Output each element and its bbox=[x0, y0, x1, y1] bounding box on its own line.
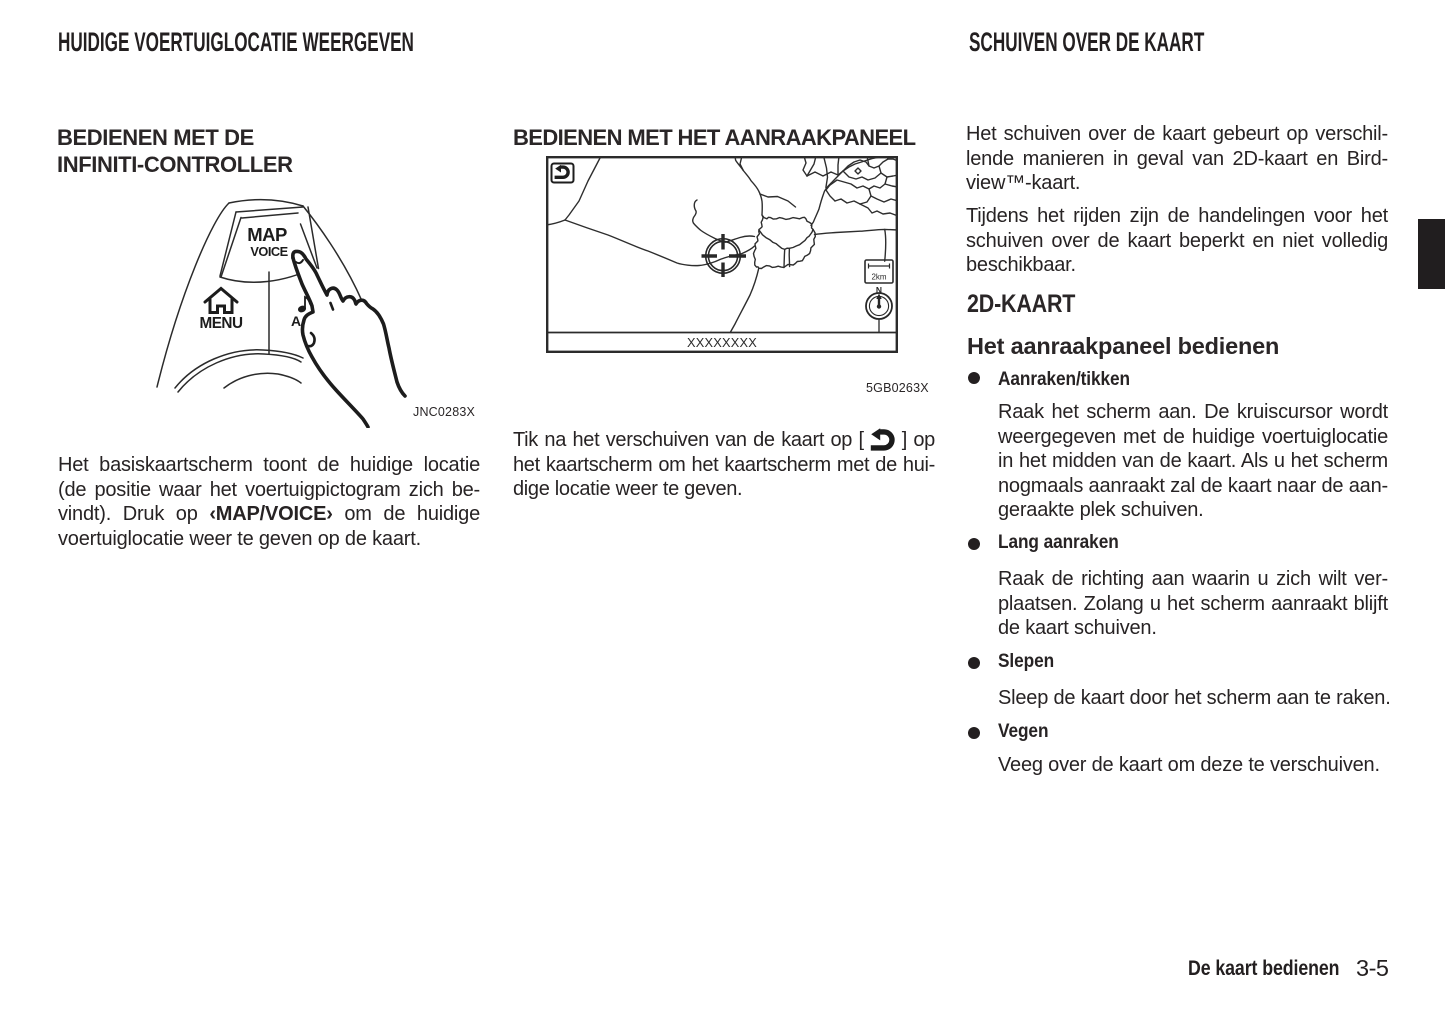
svg-text:XXXXXXXX: XXXXXXXX bbox=[687, 335, 757, 350]
svg-text:2km: 2km bbox=[871, 273, 886, 282]
svg-text:MAP: MAP bbox=[247, 224, 287, 245]
svg-text:A: A bbox=[291, 313, 301, 329]
svg-text:VOICE: VOICE bbox=[250, 244, 288, 259]
svg-text:MENU: MENU bbox=[199, 315, 242, 332]
